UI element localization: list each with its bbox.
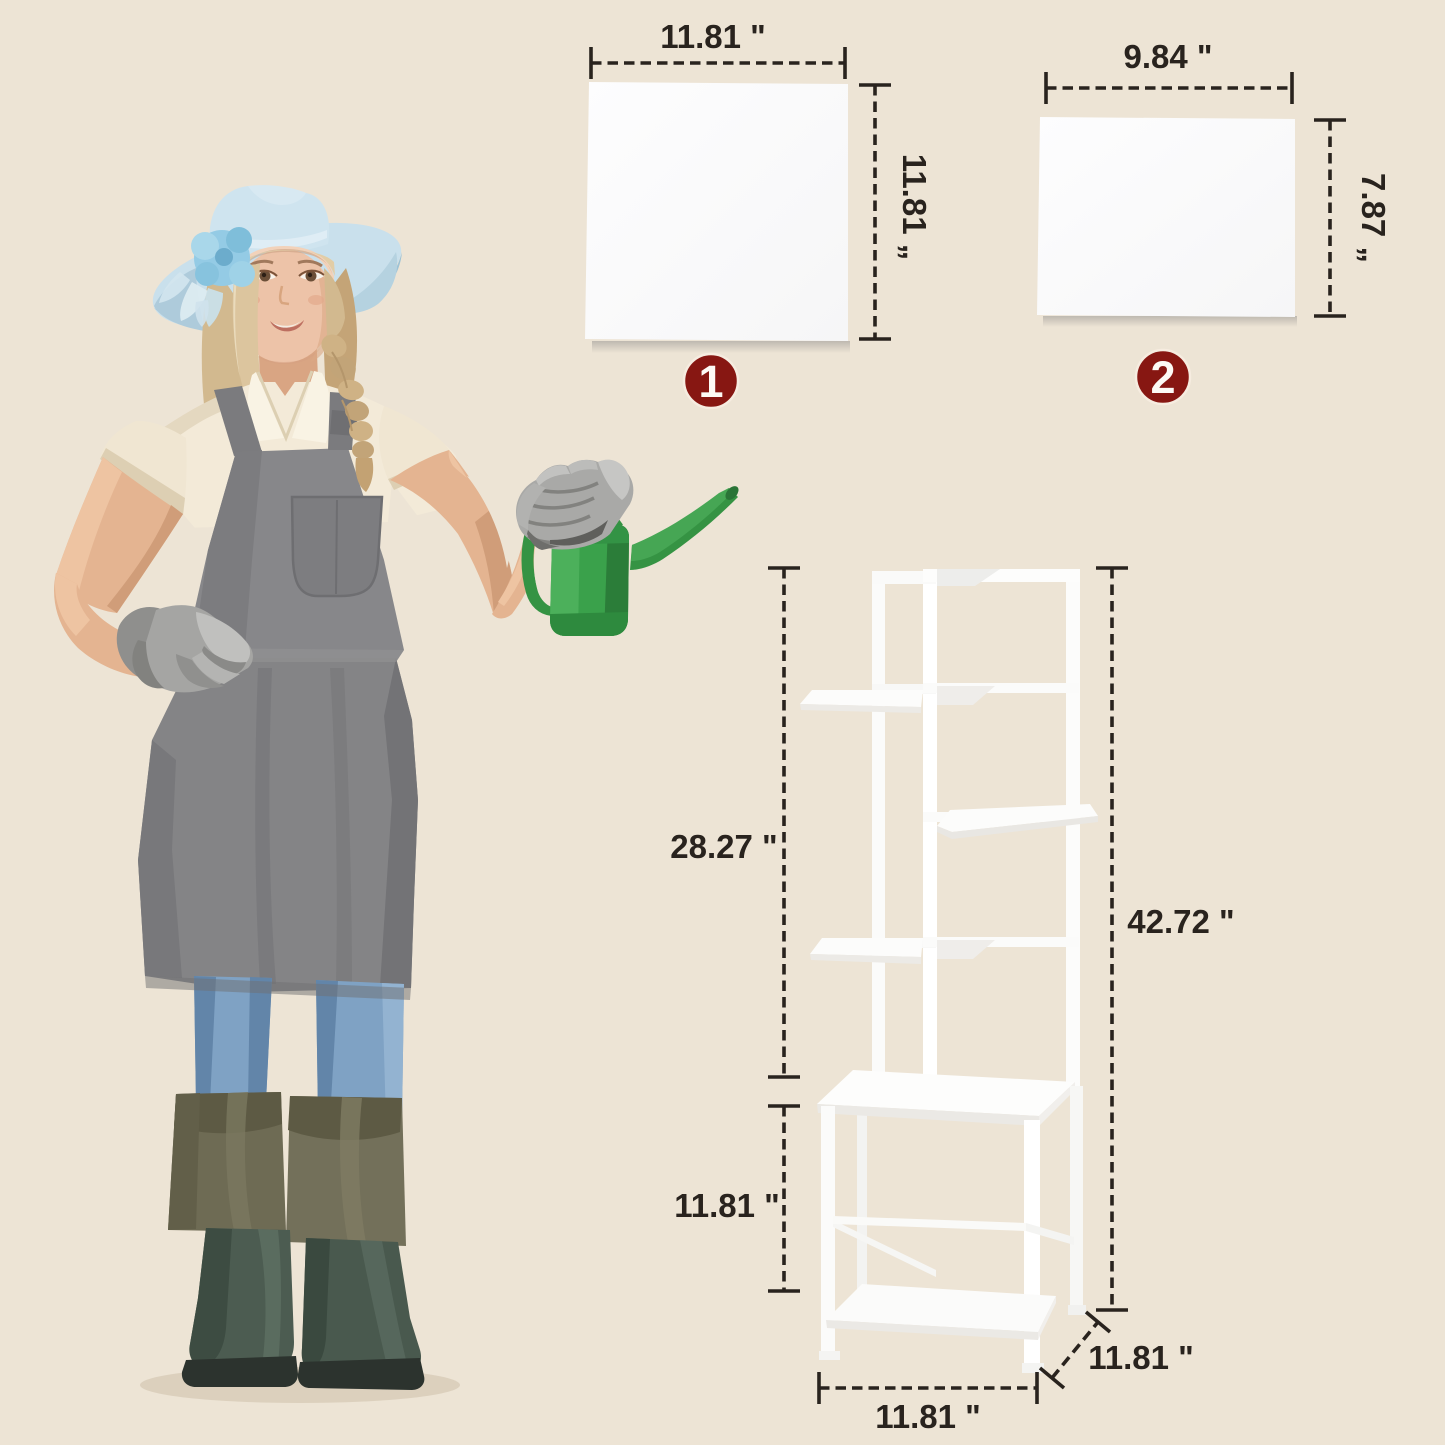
svg-text:9.84 ": 9.84 "	[1123, 38, 1212, 75]
svg-text:28.27 ": 28.27 "	[670, 828, 777, 865]
svg-text:42.72 ": 42.72 "	[1127, 903, 1234, 940]
svg-text:11.81 „: 11.81 „	[896, 154, 933, 260]
svg-text:7.87 „: 7.87 „	[1355, 173, 1392, 263]
svg-text:11.81 ": 11.81 "	[660, 18, 766, 55]
svg-text:11.81 ": 11.81 "	[1088, 1339, 1194, 1376]
svg-text:11.81 ": 11.81 "	[875, 1398, 981, 1435]
svg-text:1: 1	[698, 356, 723, 407]
svg-text:2: 2	[1150, 352, 1175, 403]
svg-text:11.81 ": 11.81 "	[674, 1187, 780, 1224]
